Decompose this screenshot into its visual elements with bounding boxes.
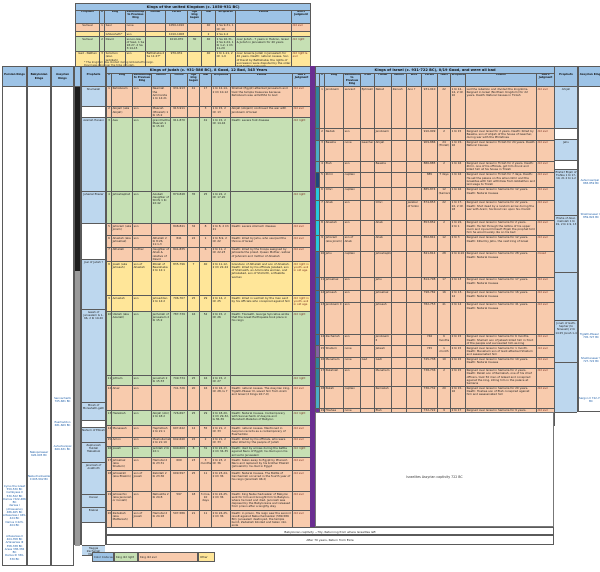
cell-years: 17 — [438, 278, 451, 291]
cell-wife — [407, 161, 422, 172]
israel-king-row: 10 Jehu captain Jehoshaphat 841-814 28 2… — [316, 252, 555, 278]
legend-item: Other — [198, 552, 215, 562]
judah-king-row: 20 Zedekiah (aka Mattaniah) son of Josia… — [107, 511, 311, 529]
cell-mother: Jedidah 2 Ki 22:1 — [152, 446, 171, 457]
cell-year: 11 — [200, 511, 212, 529]
assyrian-kings-header-left: Assyrian Kings — [52, 67, 73, 87]
prophet-cell — [555, 161, 577, 170]
cell-mother — [392, 236, 407, 252]
cell-father: Jehu — [375, 278, 392, 291]
cell-years: 24 (Tirzah) — [438, 140, 451, 161]
cell-period: 841-835 — [171, 247, 188, 262]
cell-mother — [392, 278, 407, 291]
cell-judgment: did right — [293, 446, 311, 457]
cell-years: 41 — [438, 303, 451, 335]
cell-mother: Naamah the Ammonite 1 Ki 14:21 — [152, 87, 171, 107]
israel-king-row: 16 Menahem none Gad Gadi 745-738 10 2 Ki… — [316, 357, 555, 368]
cell-wife — [407, 291, 422, 303]
cell-relationship: son — [344, 291, 361, 303]
cell-judgment: did right — [293, 118, 311, 192]
king-entry: Esarhaddon 681-669 BC — [52, 421, 73, 427]
cell-scriptures: 2 Ki 24-25, 2 Ch 36 — [212, 492, 231, 511]
prophet-cell — [82, 224, 105, 260]
cell-year: 17 — [200, 87, 212, 107]
cell-relationship: son — [344, 161, 361, 172]
cell-father: Jeroboam II — [375, 335, 392, 346]
cell-relationship: son of Josiah — [133, 511, 152, 529]
cell-period: 597-586 — [171, 511, 188, 529]
assyrian-captivity-text: Israelites Assyrian captivity 722 BC — [406, 475, 462, 479]
judah-king-row: 10 Uzziah (aka Azariah) son Jecholiah of… — [107, 312, 311, 376]
cell-scriptures: 2 Ki 14, 2 Ch 25 — [212, 296, 231, 312]
judah-king-row: 9 Amaziah son Jehoaddan 2 Ki 14:2 796-76… — [107, 296, 311, 312]
cell-wife — [407, 303, 422, 335]
cell-king: Jehoahaz — [325, 278, 344, 291]
cell-judgment: did evil — [537, 87, 555, 129]
cell-tribe — [361, 129, 375, 140]
prophet-cell: Ahijah — [555, 87, 577, 129]
cell-relationship: son — [344, 335, 361, 346]
cell-father: Ahijah — [375, 140, 392, 161]
cell-scriptures: 2 Ki 22-23, 2 Ch 34-35 — [212, 446, 231, 457]
king-entry-text: Shalmaneser III 859-824 BC — [581, 212, 600, 219]
cell-king: Uzziah (aka Azariah) — [112, 312, 133, 376]
cell-relationship: son — [344, 201, 361, 221]
prophet-name: Zephaniah Huldah Habakkuk — [86, 443, 100, 453]
cell-age: 18 — [188, 492, 200, 511]
legend-item-label: Other — [200, 555, 208, 559]
cell-mother — [392, 291, 407, 303]
cell-judgment: did evil — [537, 140, 555, 161]
cell-king: Asa — [112, 118, 133, 192]
cell-age — [188, 107, 200, 118]
cell-period: 910-909 — [422, 129, 438, 140]
cell-age: 21 — [188, 511, 200, 529]
cell-events: Death: severe stomach disease — [231, 224, 293, 236]
cell-king: Jehoash — [325, 291, 344, 303]
col-header-mother: Mother — [146, 11, 166, 24]
cell-year: 41 — [200, 118, 212, 192]
cell-scriptures: 2 Ki 15-16 — [451, 386, 466, 408]
cell-father: Jeroboam — [375, 129, 392, 140]
cell-years: 20 — [438, 386, 451, 408]
cell-year: 3 mos, 10 days — [200, 492, 212, 511]
prophet-cell — [555, 273, 577, 321]
cell-age: 23 — [188, 458, 200, 471]
cell-relationship: son — [133, 296, 152, 312]
timeline-bar-gray-segment — [75, 271, 80, 546]
cell-period: 841 — [171, 236, 188, 247]
cell-tribe — [361, 368, 375, 386]
cell-scriptures: 2 Ki 8, 2 Ch 21 — [212, 224, 231, 236]
prophet-cell: Shemaiah — [82, 87, 105, 107]
cell-events: Death: Tzaraath. George Syncellus wrote … — [231, 312, 293, 376]
cell-king: Zedekiah (aka Mattaniah) — [112, 511, 133, 529]
cell-king: Elah — [325, 161, 344, 172]
cell-period: 749-734 — [171, 376, 188, 386]
cell-relationship: son — [133, 446, 152, 457]
cell-scriptures: 1 Sa 9-31, 1 Ch 10 — [216, 24, 236, 32]
cell-age: 35 — [188, 192, 200, 224]
prophet-name: Jonah of Gath-hepher (to Nineveh) 2 Ki 1… — [555, 321, 576, 335]
cell-king: Menahem — [325, 357, 344, 368]
cell-scriptures: 2 Ki 11, 2 Ch 22-23 — [212, 247, 231, 262]
cell-relationship: son — [133, 386, 152, 411]
cell-relationship: son — [344, 278, 361, 291]
cell-king: Shallum — [325, 346, 344, 357]
cell-relationship: son — [133, 492, 152, 511]
cell-judgment: did evil — [293, 437, 311, 446]
prophet-name: Shemaiah — [87, 87, 100, 91]
cell-mother — [392, 221, 407, 236]
cell-events: Death: killed by the troops assigned by … — [231, 247, 293, 262]
cell-tribe — [361, 188, 375, 201]
col-header-scriptures: Scriptures — [216, 11, 236, 24]
prophet-cell: Elisha? Elijah of Tishbe 1 Ki 17-19, 21 … — [555, 170, 577, 216]
prophet-cell: Micah of Moresheth-gath — [82, 403, 105, 421]
cell-father: Baasha — [375, 161, 392, 172]
judah-header-row: # King Relationship to Previous King Mot… — [107, 74, 311, 87]
legend-item-label: King did evil — [140, 555, 157, 559]
cell-relationship: son — [133, 118, 152, 192]
king-entry: Sennacherib 705-681 BC — [52, 397, 73, 403]
cell-judgment: did right — [292, 37, 311, 52]
cell-events: Reigned over Israel in Samaria for 2 yea… — [466, 221, 537, 236]
cell-events: Death: severe foot disease — [231, 118, 293, 192]
cell-relationship: none — [126, 24, 146, 32]
prophet-cell — [82, 523, 105, 546]
cell-relationship: captain — [344, 173, 361, 188]
assyrian-captivity-box: Israelites Assyrian captivity 722 BC — [315, 412, 554, 527]
judah-king-row: 3 Asa son grandmother Maacah 1 Ki 15:10 … — [107, 118, 311, 192]
prophet-name: Jehu — [563, 140, 569, 144]
cell-year: 16 — [200, 376, 212, 386]
cell-year: 6 — [200, 247, 212, 262]
cell-judgment: did evil — [537, 303, 555, 335]
prophet-cell: Azariah Hanani — [82, 118, 105, 192]
cell-relationship: son — [133, 376, 152, 386]
cell-judgment: did evil — [293, 236, 311, 247]
cell-scriptures: 1 Ki 15, 2 Ch 14-16 — [212, 118, 231, 192]
cell-king: Ahab — [325, 201, 344, 221]
cell-judgment: did evil — [537, 188, 555, 201]
united-header-row: Prophets # King Relationship to Previous… — [76, 11, 311, 24]
cell-tribe — [361, 291, 375, 303]
cell-age: 32 — [188, 224, 200, 236]
col-header-period: Period — [171, 74, 188, 87]
cell-period: 746 — [422, 335, 438, 346]
cell-wife — [407, 236, 422, 252]
cell-judgment: did evil — [293, 426, 311, 437]
cell-years: 16 — [438, 291, 451, 303]
cell-scriptures: 2 Ki 15 — [451, 368, 466, 386]
israel-king-row: 8 Ahaziah son Ahab 853-852 2 1 Ki 22, 2 … — [316, 221, 555, 236]
cell-period: 870-848 — [171, 192, 188, 224]
cell-period: 885 — [422, 173, 438, 188]
cell-mother — [392, 173, 407, 188]
cell-year: 52 — [200, 312, 212, 376]
cell-king: Nadab — [325, 129, 344, 140]
cell-period: 738-736 — [422, 368, 438, 386]
cell-period: 909-886 — [422, 140, 438, 161]
cell-scriptures: 2 Ki 21, 2 Ch 33 — [212, 437, 231, 446]
cell-relationship: son of Josiah — [133, 471, 152, 492]
cell-relationship: mother — [133, 247, 152, 262]
cell-mother — [392, 252, 407, 278]
cell-age: 8 — [188, 446, 200, 457]
cell-period: 911-870 — [171, 118, 188, 192]
king-entry-text: Ashurnasirpal II 883-859 BC — [581, 178, 600, 185]
cell-king: Ahaziah (aka Jehoahaz) — [112, 236, 133, 247]
cell-events: Grandson of Athaliah and son of Ahaziah.… — [231, 262, 293, 296]
cell-relationship: son — [344, 129, 361, 140]
cell-relationship: servant — [344, 87, 361, 129]
cell-tribe — [361, 335, 375, 346]
cell-period: 798-782 — [422, 291, 438, 303]
cell-judgment: did evil — [537, 368, 555, 386]
col-header-prophets: Prophets — [76, 11, 100, 24]
cell-mother — [392, 386, 407, 408]
cell-king: Abijam (aka Abijah) — [112, 107, 133, 118]
cell-wife — [407, 278, 422, 291]
cell-tribe — [361, 303, 375, 335]
cell-years: 10 — [438, 357, 451, 368]
col-header-scriptures: Scriptures — [451, 74, 466, 87]
cell-scriptures: 2 Ki 15 — [451, 357, 466, 368]
cell-year: 16 — [200, 386, 212, 411]
cell-age — [188, 247, 200, 262]
legend-item-label: Color Code Legend: — [94, 555, 114, 559]
judah-prophets-header: Prophets — [82, 67, 105, 87]
cell-mother: Jerushah 2 Ki 15:33 — [152, 376, 171, 386]
cell-events: Reigned over Israel in Samaria for 6 mon… — [466, 335, 537, 346]
cell-period: 745-738 — [422, 357, 438, 368]
color-code-legend: Color Code Legend: King did right King d… — [92, 552, 215, 562]
cell-relationship: captain — [344, 386, 361, 408]
prophet-cell: Nahum of Elkosh — [82, 428, 105, 443]
cell-king: Jehoahaz (aka Shallum) — [112, 458, 133, 471]
cell-mother — [146, 24, 166, 32]
cell-tribe — [361, 201, 375, 221]
cell-events: Reigned over Israel in Samaria for 2 yea… — [466, 368, 537, 386]
cell-age: 25 — [188, 411, 200, 426]
judah-king-row: 19 Jehoiachin (aka Jeconiah or Coniah) s… — [107, 492, 311, 511]
judah-king-row: 17 Jehoahaz (aka Shallum) son Hamutal 2 … — [107, 458, 311, 471]
col-header-mother: Mother — [392, 74, 407, 87]
cell-years: 2 — [438, 368, 451, 386]
israel-king-row: 6 Omri captain 885-874 12 (Samaria) 1 Ki… — [316, 188, 555, 201]
cell-scriptures: 2 Ki 23, 2 Ch 36 — [212, 458, 231, 471]
cell-events: Death: King Nebuchadnezzar of Babylon se… — [231, 492, 293, 511]
cell-king: Zechariah — [325, 335, 344, 346]
israel-king-row: 9 Jehoram (aka Joram) son of Ahab Ahab 8… — [316, 236, 555, 252]
legend-item: King did right — [114, 552, 138, 562]
prophet-cell — [82, 421, 105, 428]
cell-year: 8 — [200, 224, 212, 236]
prophet-name: Jahaziel Eliezer — [83, 192, 103, 196]
cell-scriptures: 1 Ki 15 — [451, 129, 466, 140]
cell-king: Athaliah — [112, 247, 133, 262]
prophet-name: Azariah Hanani — [83, 118, 103, 122]
cell-scriptures: 1 Ki 12-14, 2 Ch 10 — [451, 87, 466, 129]
israel-table-wrap: Kings of Israel (c. 931-722 BC), 0/19 Go… — [315, 66, 554, 426]
cell-events: over Judah - 7 years in Hebron, Israel &… — [236, 37, 292, 52]
cell-judgment: did evil — [293, 492, 311, 511]
cell-scriptures: 2 Ki 9-10 — [451, 252, 466, 278]
israel-prophets-column: Prophets Ahijah Jehu Elisha? Elijah of T… — [554, 66, 578, 412]
cell-events: Reigned over Israel in Samaria for 16 ye… — [466, 291, 537, 303]
cell-events: Reigned over Israel in Tirzah for 7 days… — [466, 173, 537, 188]
israel-king-row: 5 Zimri captain 885 7 days 1 Ki 16 Reign… — [316, 173, 555, 188]
cell-king: Jehu — [325, 252, 344, 278]
cell-judgment: did evil — [293, 87, 311, 107]
cell-wife — [407, 173, 422, 188]
cell-events — [231, 376, 293, 386]
cell-period: 640-609 — [171, 446, 188, 457]
cell-judgment: did evil — [537, 173, 555, 188]
cell-king: Ahaz — [112, 386, 133, 411]
cell-relationship: none — [344, 357, 361, 368]
cell-scriptures: 2 Ki 13-14 — [451, 291, 466, 303]
cell-scriptures: 1 Ki 12-14, 2 Ch 10-12 — [212, 87, 231, 107]
cell-mother: Hamutal 2 Ki 23:31 — [152, 458, 171, 471]
cell-king: Josiah — [112, 446, 133, 457]
cell-events: Death: in prison. His reign saw the seco… — [231, 511, 293, 529]
cell-father: Menahem — [375, 368, 392, 386]
cell-relationship: none — [344, 140, 361, 161]
cell-scriptures: 1 Ki 16 — [451, 188, 466, 201]
cell-scriptures: 1 Ki 22, 2 Ch 17-20 — [212, 192, 231, 224]
cell-king: Jehoshaphat — [112, 192, 133, 224]
cell-year: 31 — [200, 446, 212, 457]
prophet-name: Jeremiah of Anathoth — [86, 463, 101, 470]
judah-kings-table: Kings of Judah (c. 931-586 BC), 8 Good, … — [106, 66, 311, 529]
judah-king-row: 14 Manasseh son Hephzibah 2 Ki 21:1 697-… — [107, 426, 311, 437]
cell-mother — [146, 37, 166, 52]
cell-prophets: Samuel — [76, 24, 100, 32]
cell-wife — [407, 140, 422, 161]
cell-mother — [152, 224, 171, 236]
prophet-cell: Jahaziel Eliezer — [82, 192, 105, 224]
cell-mother: Jecholiah of Jerusalem 2 Ki 15:2 — [152, 312, 171, 376]
cell-judgment: did evil — [293, 224, 311, 236]
cell-judgment: did evil — [293, 386, 311, 411]
cell-tribe: Issachar — [361, 140, 375, 161]
judah-king-row: 12 Ahaz son 741-726 20 16 2 Ki 16, 2 Ch … — [107, 386, 311, 411]
king-entry: Nabopolassar 626-605 BC — [28, 451, 50, 457]
judah-king-row: 7 Athaliah mother daughter of Ahab & rel… — [107, 247, 311, 262]
cell-relationship: captain — [344, 188, 361, 201]
col-header-father: Father — [375, 74, 392, 87]
cell-events — [231, 192, 293, 224]
cell-relationship: captain — [344, 252, 361, 278]
king-entry-text: Tiglath-Pileser III 745-727 BC — [580, 332, 600, 339]
cell-years: 2 — [438, 161, 451, 172]
cell-father: Ahab — [375, 236, 392, 252]
cell-tribe — [361, 161, 375, 172]
cell-king: Jehoram (aka Joram) — [325, 236, 344, 252]
babylonian-captivity-row: Babylonian captivity ~70y, Returning fro… — [106, 527, 554, 535]
persian-kings-body: Cyrus the Great 559-530 BC Cambyses II 5… — [3, 87, 26, 566]
cell-age: 22 — [188, 236, 200, 247]
cell-judgment: did evil — [537, 357, 555, 368]
cell-mother: daughter of Ahab & relative of David — [152, 247, 171, 262]
col-header-king: King — [325, 74, 344, 87]
cell-period: 848-841 — [171, 224, 188, 236]
cell-year: 40 — [202, 24, 216, 32]
cell-events: Death: killed by Jehu, who usurped the t… — [231, 236, 293, 247]
cell-mother — [392, 368, 407, 386]
cell-events: Reigned over Israel in Tirzah for 24 yea… — [466, 140, 537, 161]
cell-king: Jeroboam II — [325, 303, 344, 335]
israel-header-row: # King Relationship to Previous King Tri… — [316, 74, 555, 87]
judah-prophets-column: Prophets Shemaiah Azariah Hanani Jahazie… — [81, 66, 106, 545]
israel-king-row: 14 Zechariah son Jeroboam II 746 6 month… — [316, 335, 555, 346]
col-header-events: Events — [466, 74, 537, 87]
israel-king-row: 1 Jeroboam servant Ephraim Nebat Zeruah … — [316, 87, 555, 129]
judah-king-row: 4 Jehoshaphat son Azubah daughter of Shi… — [107, 192, 311, 224]
assyrian-kings-header-right: Assyrian Kings — [579, 67, 600, 87]
cell-events: Reigned over Israel in Samaria for 22 ye… — [466, 201, 537, 221]
cell-scriptures: 1 Ki 16 — [451, 173, 466, 188]
king-entry-text: Shalmaneser V 727-722 BC — [581, 356, 600, 363]
cell-events: Death: killed in Lachish by the men sent… — [231, 296, 293, 312]
col-header-judgment: God's Judgment — [293, 74, 311, 87]
col-header-tribe: Tribe — [361, 74, 375, 87]
cell-period: 1010-970 — [166, 37, 188, 52]
cell-judgment: did evil — [537, 346, 555, 357]
legend-item: King did evil — [138, 552, 198, 562]
col-header-years: Years — [438, 74, 451, 87]
cell-scriptures: 2 Ki 14 — [451, 303, 466, 335]
cell-year: 40 — [200, 262, 212, 296]
assyrian-kings-column-right: Assyrian Kings Ashurnasirpal II 883-859 … — [578, 66, 600, 412]
cell-events: Reigned over Israel for 2 years. Death: … — [466, 129, 537, 140]
cell-father: Omri — [375, 201, 392, 221]
cell-years: 12 (Samaria) — [438, 188, 451, 201]
cell-mother: Athaliah 2 Ki 8:26, 11:1-3 — [152, 236, 171, 247]
cell-judgment: did evil — [537, 278, 555, 291]
cell-year: 25 — [200, 192, 212, 224]
legend-item: Color Code Legend: — [92, 552, 114, 562]
cell-period: 642-640 — [171, 437, 188, 446]
king-entry: Artaxerxes II 404-358 BC Artaxerxes III … — [3, 535, 26, 561]
cell-wife — [407, 129, 422, 140]
cell-scriptures: 2 Ki 3 — [451, 236, 466, 252]
cell-scriptures: 1 Ki 15-16 — [451, 140, 466, 161]
israel-kings-table: Kings of Israel (c. 931-722 BC), 0/19 Go… — [315, 66, 555, 426]
cell-mother: grandmother Maacah 1 Ki 15:10 — [152, 118, 171, 192]
col-header-judgment: God's Judgment — [537, 74, 555, 87]
cell-relationship: son — [344, 368, 361, 386]
cell-prophets: Samuel — [76, 37, 100, 52]
cell-age: 25 — [188, 296, 200, 312]
cell-years: 7 days — [438, 173, 451, 188]
cell-year: 3 — [200, 107, 212, 118]
israel-king-row: 7 Ahab son Omri Jezebel of Sidon 874-853… — [316, 201, 555, 221]
king-entry-text: Ashurbanipal 669-631 BC — [54, 444, 72, 451]
cell-father: Jehoahaz — [375, 291, 392, 303]
col-header-age: Age king began — [188, 74, 200, 87]
prophet-cell: Ezekiel — [82, 508, 105, 523]
cell-mother — [392, 303, 407, 335]
king-entry: Shalmaneser III 859-824 BC — [579, 213, 600, 219]
judah-king-row: 13 Hezekiah son Abijah (Abi) 2 Ki 18:2 7… — [107, 411, 311, 426]
cell-scriptures: 1 Sa 16-31, 2 Sa 2-24, 1 Ki 1-2, 1 Ch 11… — [216, 37, 236, 52]
cell-period: 745 — [422, 346, 438, 357]
cell-wife: Ano ? — [407, 87, 422, 129]
prophet-cell — [82, 107, 105, 118]
